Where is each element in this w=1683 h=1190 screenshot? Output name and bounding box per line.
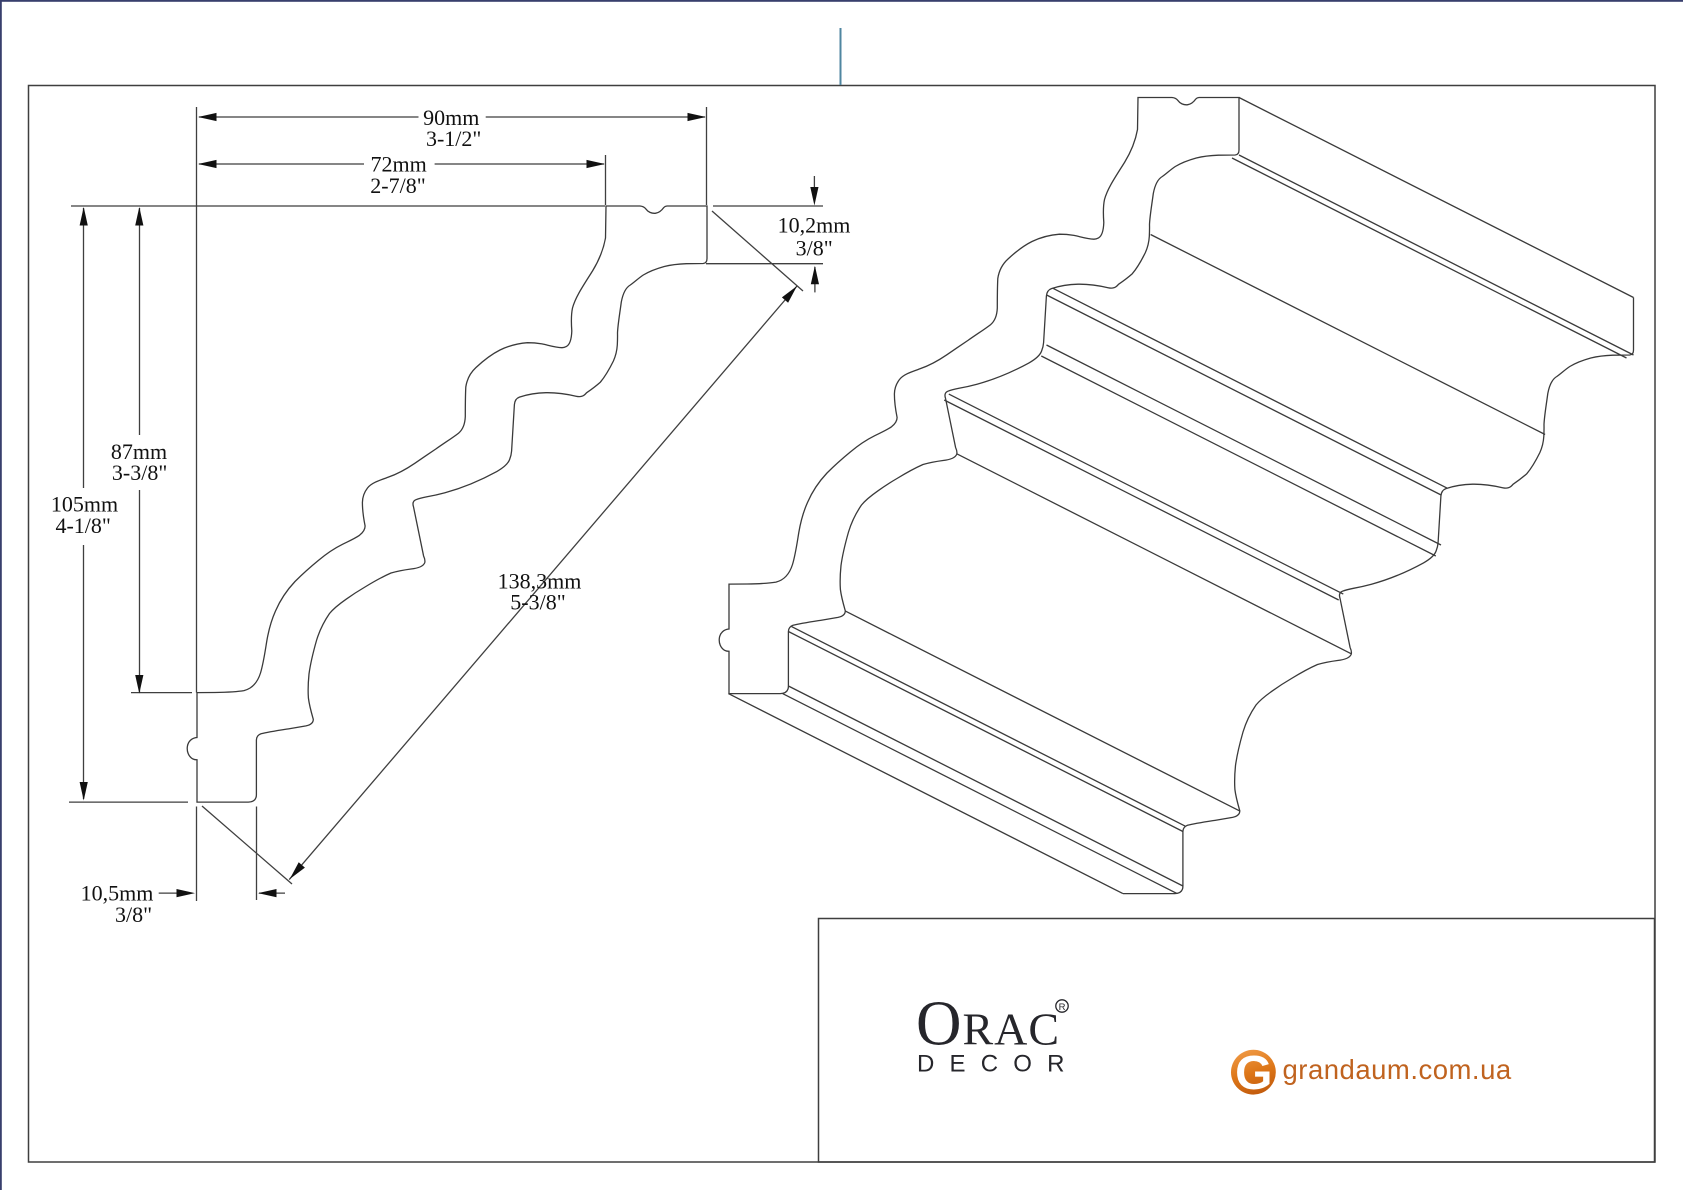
svg-text:G: G bbox=[1235, 1047, 1272, 1100]
svg-text:R: R bbox=[1059, 1002, 1066, 1013]
svg-text:3-3/8": 3-3/8" bbox=[112, 460, 167, 485]
svg-text:2-7/8": 2-7/8" bbox=[370, 173, 425, 198]
svg-text:3/8": 3/8" bbox=[115, 902, 152, 927]
svg-text:10,2mm: 10,2mm bbox=[778, 213, 851, 238]
svg-text:3-1/2": 3-1/2" bbox=[426, 126, 481, 151]
svg-text:grandaum.com.ua: grandaum.com.ua bbox=[1283, 1054, 1512, 1085]
svg-text:5-3/8": 5-3/8" bbox=[510, 590, 565, 615]
svg-text:3/8": 3/8" bbox=[796, 236, 833, 261]
svg-text:DECOR: DECOR bbox=[917, 1051, 1080, 1078]
svg-text:4-1/8": 4-1/8" bbox=[55, 513, 110, 538]
svg-text:ORAC: ORAC bbox=[916, 989, 1060, 1059]
